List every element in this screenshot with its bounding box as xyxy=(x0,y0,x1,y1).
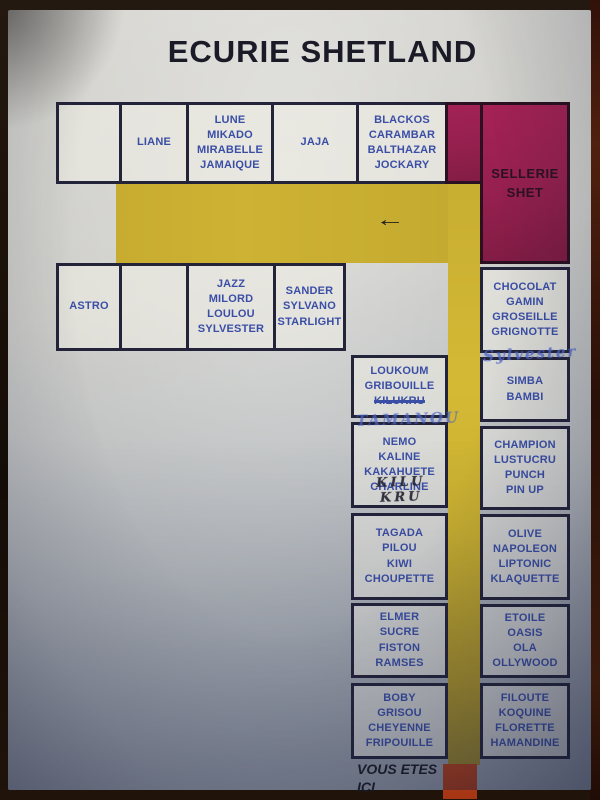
stall-horse-names: CHOCOLAT GAMIN GROSEILLE GRIGNOTTE xyxy=(491,280,558,341)
stall-sander: SANDER SYLVANO STARLIGHT xyxy=(273,263,346,351)
photo-background: ECURIE SHETLAND ← LIANE LUNE MIKADO MIRA… xyxy=(0,0,600,800)
stall-horse-names: SANDER SYLVANO STARLIGHT xyxy=(278,284,342,330)
page-title: ECURIE SHETLAND xyxy=(8,34,591,70)
stall-horse-names: ASTRO xyxy=(69,299,109,314)
direction-arrow-icon: ← xyxy=(345,209,435,232)
stall-horse-names: ELMER SUCRE FISTON RAMSES xyxy=(375,610,423,671)
stall-simba: SIMBA BAMBI xyxy=(480,357,570,422)
stall-empty-top xyxy=(56,102,122,184)
handwriting-annotation: KILU KRU xyxy=(357,473,446,506)
stall-horse-names: BLACKOS CARAMBAR BALTHAZAR JOCKARY xyxy=(368,113,437,174)
tack-room-label: SELLERIE SHET xyxy=(491,164,559,203)
stall-name-stack: LOUKOUM GRIBOUILLE KILUKRU xyxy=(365,364,435,410)
stall-horse-names: JAJA xyxy=(301,135,330,150)
stall-lune: LUNE MIKADO MIRABELLE JAMAIQUE xyxy=(186,102,274,184)
stall-etoile: ETOILE OASIS OLA OLLYWOOD xyxy=(480,604,570,678)
crossed-out-horse-name: KILUKRU xyxy=(374,394,425,409)
stall-jaja: JAJA xyxy=(271,102,359,184)
stall-horse-names: TAGADA PILOU KIWI CHOUPETTE xyxy=(365,526,435,587)
you-are-here-label: VOUS ETES ICI xyxy=(357,760,437,796)
corridor-vertical xyxy=(448,184,480,765)
handwriting-annotation: TAMANOU xyxy=(356,408,461,430)
stall-liane: LIANE xyxy=(119,102,189,184)
stall-nemo: NEMO KALINE KAKAHUETE CHARLINE KILU KRU xyxy=(351,422,448,508)
stall-chocolat: CHOCOLAT GAMIN GROSEILLE GRIGNOTTE Sylve… xyxy=(480,267,570,353)
stall-astro: ASTRO xyxy=(56,263,122,351)
photo-edge-shadow xyxy=(590,0,600,800)
tack-room-annex xyxy=(445,102,483,184)
stall-horse-names: JAZZ MILORD LOULOU SYLVESTER xyxy=(198,277,264,338)
stall-boby: BOBY GRISOU CHEYENNE FRIPOUILLE xyxy=(351,683,448,759)
stall-loukoum: LOUKOUM GRIBOUILLE KILUKRU TAMANOU xyxy=(351,355,448,418)
stall-horse-names: CHAMPION LUSTUCRU PUNCH PIN UP xyxy=(494,438,556,499)
stall-horse-names: BOBY GRISOU CHEYENNE FRIPOUILLE xyxy=(366,691,433,752)
stall-champion: CHAMPION LUSTUCRU PUNCH PIN UP xyxy=(480,426,570,510)
stall-elmer: ELMER SUCRE FISTON RAMSES xyxy=(351,603,448,678)
stall-tagada: TAGADA PILOU KIWI CHOUPETTE xyxy=(351,513,448,600)
stall-filoute: FILOUTE KOQUINE FLORETTE HAMANDINE xyxy=(480,683,570,759)
stall-horse-names: FILOUTE KOQUINE FLORETTE HAMANDINE xyxy=(490,691,559,752)
stall-blackos: BLACKOS CARAMBAR BALTHAZAR JOCKARY xyxy=(356,102,448,184)
you-are-here-marker xyxy=(443,764,477,799)
stall-horse-names: LUNE MIKADO MIRABELLE JAMAIQUE xyxy=(197,113,263,174)
stall-horse-names: ETOILE OASIS OLA OLLYWOOD xyxy=(492,611,557,672)
tack-room: SELLERIE SHET xyxy=(480,102,570,264)
stable-map-sheet: ECURIE SHETLAND ← LIANE LUNE MIKADO MIRA… xyxy=(8,10,591,790)
stall-horse-names: LIANE xyxy=(137,135,171,150)
stall-horse-names: LOUKOUM GRIBOUILLE xyxy=(365,364,435,394)
stall-horse-names: OLIVE NAPOLEON LIPTONIC KLAQUETTE xyxy=(490,527,559,588)
stall-olive: OLIVE NAPOLEON LIPTONIC KLAQUETTE xyxy=(480,514,570,600)
stall-empty-second xyxy=(119,263,189,351)
stall-horse-names: SIMBA BAMBI xyxy=(506,374,543,404)
stall-jazz: JAZZ MILORD LOULOU SYLVESTER xyxy=(186,263,276,351)
